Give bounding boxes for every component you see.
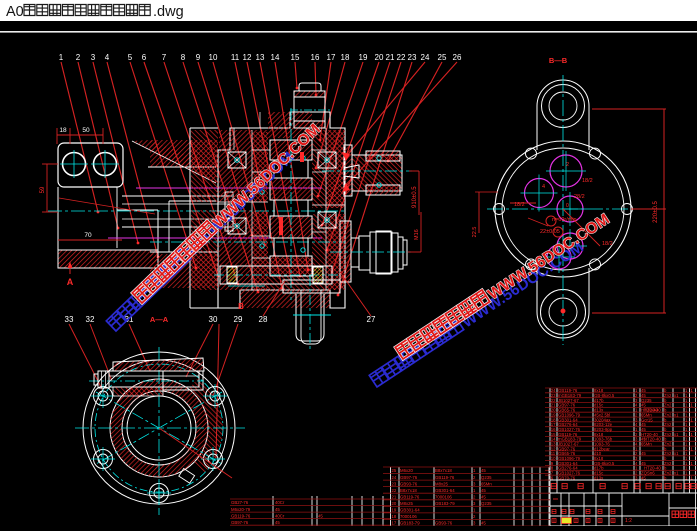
svg-text:16: 16 — [311, 53, 320, 62]
svg-text:28/2: 28/2 — [574, 194, 585, 200]
svg-text:GB183-79: GB183-79 — [435, 501, 455, 506]
svg-text:Q235: Q235 — [481, 501, 492, 506]
svg-text:B—B: B—B — [549, 56, 568, 65]
svg-text:40Cr: 40Cr — [275, 500, 285, 505]
svg-text:GB301-64: GB301-64 — [435, 488, 455, 493]
svg-text:M8x25: M8x25 — [400, 501, 414, 506]
svg-text:M16: M16 — [414, 229, 420, 240]
svg-text:12: 12 — [243, 53, 252, 62]
svg-text:18: 18 — [392, 514, 397, 519]
svg-text:4: 4 — [542, 184, 545, 190]
svg-text:1:2: 1:2 — [625, 518, 632, 524]
svg-text:GB183-79: GB183-79 — [400, 521, 420, 526]
svg-text:23: 23 — [408, 53, 417, 62]
svg-text:GB119-76: GB119-76 — [231, 513, 251, 518]
svg-text:32: 32 — [86, 315, 95, 324]
svg-text:40Cr: 40Cr — [275, 513, 285, 518]
svg-text:65Mn: 65Mn — [641, 441, 652, 446]
svg-text:3: 3 — [91, 53, 96, 62]
svg-text:20: 20 — [375, 53, 384, 62]
svg-text:33: 33 — [65, 315, 74, 324]
svg-text:25: 25 — [438, 53, 447, 62]
svg-text:GB27-76: GB27-76 — [231, 500, 249, 505]
svg-text:18/2: 18/2 — [602, 241, 613, 247]
svg-text:7000106: 7000106 — [400, 514, 417, 519]
svg-text:45: 45 — [481, 494, 486, 499]
svg-text:17: 17 — [392, 521, 397, 526]
svg-text:45: 45 — [481, 521, 486, 526]
svg-text:x1: x1 — [674, 471, 679, 476]
svg-text:18: 18 — [341, 53, 350, 62]
svg-text:x1: x1 — [674, 432, 679, 437]
svg-text:45: 45 — [641, 451, 646, 456]
svg-text:45: 45 — [275, 507, 280, 512]
svg-text:26: 26 — [453, 53, 462, 62]
svg-text:19: 19 — [359, 53, 368, 62]
svg-text:24: 24 — [421, 53, 430, 62]
svg-text:22: 22 — [392, 488, 397, 493]
svg-text:30: 30 — [209, 315, 218, 324]
svg-text:25: 25 — [392, 468, 397, 473]
svg-text:18/2: 18/2 — [582, 178, 593, 184]
svg-text:GB97-76: GB97-76 — [400, 475, 418, 480]
svg-text:A: A — [67, 277, 74, 287]
svg-text:x1: x1 — [674, 412, 679, 417]
svg-text:50: 50 — [82, 127, 90, 134]
svg-text:20: 20 — [392, 501, 397, 506]
svg-text:19: 19 — [392, 508, 397, 513]
svg-text:M6x20-79: M6x20-79 — [231, 507, 251, 512]
svg-text:x1: x1 — [674, 451, 679, 456]
svg-text:GB93-76: GB93-76 — [435, 521, 453, 526]
svg-text:1: 1 — [59, 53, 64, 62]
svg-text:A0: A0 — [6, 4, 24, 20]
svg-text:0: 0 — [566, 203, 569, 209]
svg-text:x1: x1 — [674, 393, 679, 398]
svg-text:6: 6 — [142, 53, 147, 62]
svg-text:15: 15 — [291, 53, 300, 62]
svg-text:A—A: A—A — [150, 315, 169, 324]
svg-text:21: 21 — [392, 494, 397, 499]
svg-text:17: 17 — [327, 53, 336, 62]
svg-text:27: 27 — [367, 315, 376, 324]
svg-text:59: 59 — [40, 186, 46, 193]
svg-text:45: 45 — [481, 488, 486, 493]
svg-text:7: 7 — [162, 53, 167, 62]
svg-text:7000106: 7000106 — [435, 494, 452, 499]
svg-text:22.5: 22.5 — [472, 227, 478, 238]
svg-text:14: 14 — [271, 53, 280, 62]
svg-text:21: 21 — [386, 53, 395, 62]
svg-text:.dwg: .dwg — [153, 4, 184, 20]
svg-text:70: 70 — [84, 232, 92, 239]
svg-text:n=69r/min: n=69r/min — [552, 217, 577, 223]
svg-text:GB119-76: GB119-76 — [400, 494, 420, 499]
svg-text:2: 2 — [76, 53, 81, 62]
svg-text:Q235: Q235 — [481, 475, 492, 480]
svg-text:GB93-76: GB93-76 — [400, 481, 418, 486]
svg-text:45: 45 — [481, 468, 486, 473]
svg-text:11: 11 — [231, 53, 240, 62]
svg-text:28: 28 — [259, 315, 268, 324]
svg-text:B: B — [238, 302, 244, 311]
svg-text:24: 24 — [392, 475, 397, 480]
svg-text:65Mn: 65Mn — [481, 481, 492, 486]
svg-text:M8x25: M8x25 — [435, 481, 449, 486]
svg-text:B8x7x18: B8x7x18 — [435, 468, 452, 473]
svg-text:8: 8 — [181, 53, 186, 62]
svg-text:22±0.05: 22±0.05 — [540, 229, 560, 235]
svg-text:45: 45 — [318, 513, 323, 518]
svg-text:GB97-76: GB97-76 — [231, 520, 249, 525]
svg-text:5: 5 — [128, 53, 133, 62]
svg-text:GB119-76: GB119-76 — [435, 475, 455, 480]
svg-text:45: 45 — [275, 520, 280, 525]
svg-text:23: 23 — [392, 481, 397, 486]
svg-text:22: 22 — [397, 53, 406, 62]
svg-text:18: 18 — [59, 127, 67, 134]
svg-text:10: 10 — [209, 53, 218, 62]
svg-text:910±0.5: 910±0.5 — [412, 186, 418, 208]
svg-text:B8x7x18: B8x7x18 — [400, 488, 417, 493]
svg-text:4: 4 — [105, 53, 110, 62]
svg-text:13: 13 — [256, 53, 265, 62]
svg-text:GB301-64: GB301-64 — [400, 508, 420, 513]
svg-text:9: 9 — [196, 53, 201, 62]
svg-text:220±0.5: 220±0.5 — [653, 201, 659, 223]
svg-text:M6x20: M6x20 — [400, 468, 414, 473]
svg-text:29: 29 — [234, 315, 243, 324]
svg-text:2: 2 — [566, 162, 569, 168]
